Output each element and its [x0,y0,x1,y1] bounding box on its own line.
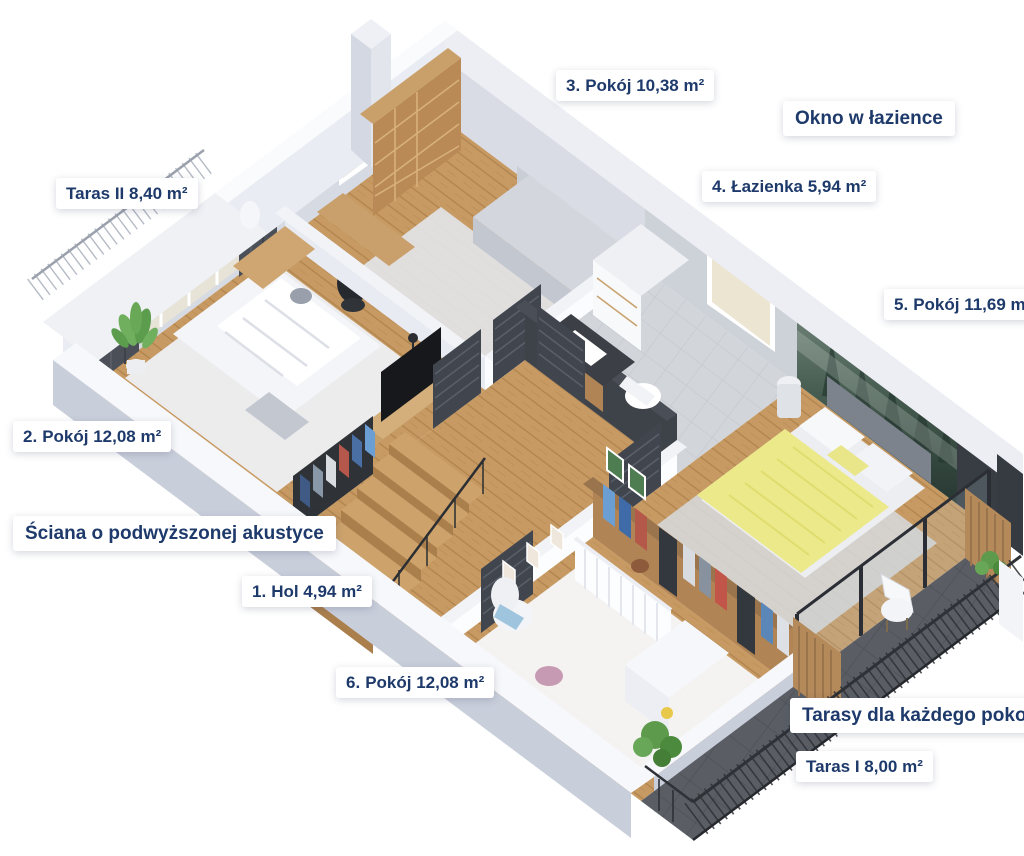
floor-lamp [408,333,418,343]
label-hol: 1.Hol 4,94 m² [242,576,372,607]
label-okno-w-lazience: Okno w łazience [783,101,955,136]
stool [290,288,312,304]
toy [661,707,673,719]
label-room-6: 6.Pokój 12,08 m² [336,667,494,698]
label-taras-2: Taras II 8,40 m² [56,178,198,209]
label-lazienka: 4.Łazienka 5,94 m² [702,171,876,202]
teddy-bear [631,559,649,573]
mirror [240,201,260,229]
label-room-5: 5.Pokój 11,69 m² [884,289,1024,320]
floor-plan-page: 3.Pokój 10,38 m² Okno w łazience Taras I… [0,0,1024,856]
label-sciana-akustyczna: Ściana o podwyższonej akustyce [13,516,336,551]
label-tarasy: Tarasy dla każdego pokoju [790,698,1024,733]
terrace-end-wall [999,560,1023,642]
label-room-3: 3.Pokój 10,38 m² [556,70,714,101]
pouf [535,666,563,686]
label-room-2: 2.Pokój 12,08 m² [13,421,171,452]
label-taras-1: Taras I 8,00 m² [796,751,933,782]
